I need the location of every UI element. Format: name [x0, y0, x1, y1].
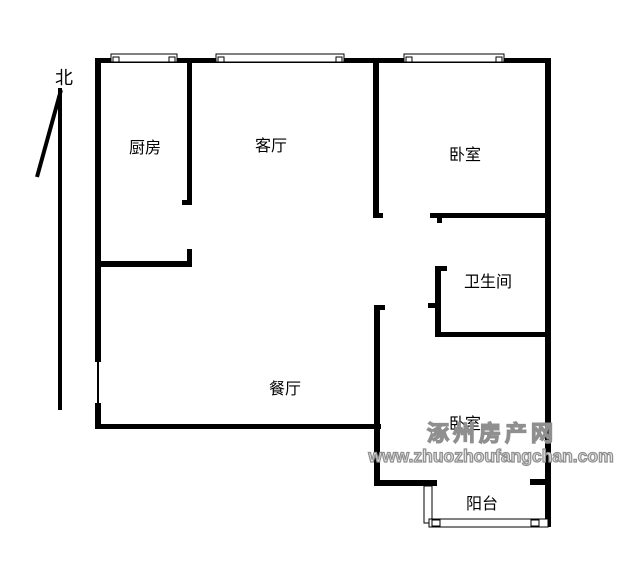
bedroom-north-window	[404, 54, 504, 62]
wall-bottom-dining	[95, 424, 381, 429]
living-room-window-cap-left	[218, 57, 224, 62]
wall-bedroom-south-balcony-left	[374, 480, 437, 486]
room-label-balcony: 阳台	[466, 495, 498, 513]
room-label-kitchen: 厨房	[129, 139, 161, 157]
balcony-front-window-cap-left	[432, 520, 440, 526]
bedroom-north-window-cap-left	[406, 57, 412, 62]
watermark-site-name: 涿州房产网	[427, 421, 557, 446]
room-label-bathroom: 卫生间	[464, 273, 512, 291]
living-room-window	[216, 54, 344, 62]
wall-bedroom-north-door-jamb	[437, 218, 442, 223]
north-arrow-head-stroke	[37, 90, 61, 177]
wall-hall-vertical-foot	[374, 305, 385, 310]
floor-plan-page: 北 厨房 客厅 卧室 卫生间 餐厅 卧室 阳台 涿州房产网 www.zhuozh…	[0, 0, 643, 562]
balcony-front-window	[429, 519, 548, 527]
wall-kitchen-divider	[187, 58, 192, 205]
wall-kitchen-door-jamb	[187, 249, 192, 261]
floor-plan-canvas: 北 厨房 客厅 卧室 卫生间 餐厅 卧室 阳台 涿州房产网 www.zhuozh…	[0, 0, 643, 562]
watermark-site-url: www.zhuozhoufangchan.com	[367, 446, 613, 466]
north-arrow: 北	[37, 68, 73, 410]
balcony-front-window-cap-right	[531, 520, 539, 526]
wall-bathroom-left-cap	[435, 266, 447, 271]
kitchen-window-cap-right	[169, 57, 175, 62]
north-arrow-shaft	[58, 88, 62, 410]
kitchen-window-cap-left	[113, 57, 119, 62]
watermark: 涿州房产网 www.zhuozhoufangchan.com	[367, 421, 613, 466]
room-label-dining-room: 餐厅	[269, 380, 301, 398]
wall-left-upper	[95, 58, 101, 362]
room-label-bedroom-north: 卧室	[449, 146, 481, 164]
balcony-side-window	[424, 486, 432, 523]
wall-bathroom-left	[435, 266, 441, 337]
wall-kitchen-south	[95, 261, 192, 267]
wall-kitchen-divider-foot	[182, 200, 192, 205]
living-room-window-cap-right	[336, 57, 342, 62]
north-label: 北	[55, 68, 73, 88]
wall-bedroom-south-balcony-right	[530, 479, 545, 485]
wall-living-bedroom-divider-foot	[373, 213, 383, 218]
bedroom-north-window-cap-right	[496, 57, 502, 62]
wall-bathroom-south	[437, 332, 551, 337]
room-label-living-room: 客厅	[255, 137, 287, 155]
wall-left-opening-line	[97, 360, 99, 403]
kitchen-window	[111, 54, 177, 62]
wall-bathroom-door-tick	[428, 303, 436, 308]
wall-bedroom-north-south	[430, 213, 551, 218]
wall-living-bedroom-divider	[373, 58, 379, 213]
